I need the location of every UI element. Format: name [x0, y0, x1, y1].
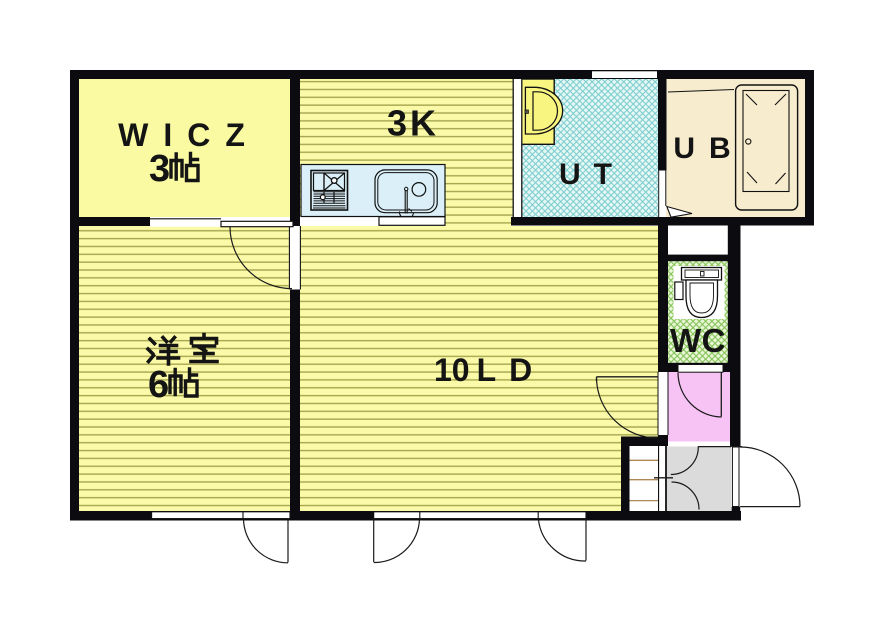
svg-text:6: 6	[148, 364, 169, 406]
svg-text:3K: 3K	[387, 103, 439, 144]
svg-text:UT: UT	[559, 158, 625, 191]
svg-text:WICZ: WICZ	[118, 117, 260, 153]
svg-text:UB: UB	[673, 132, 744, 165]
svg-text:3: 3	[149, 148, 170, 190]
svg-text:WC: WC	[670, 322, 726, 359]
svg-text:10LD: 10LD	[434, 352, 532, 388]
